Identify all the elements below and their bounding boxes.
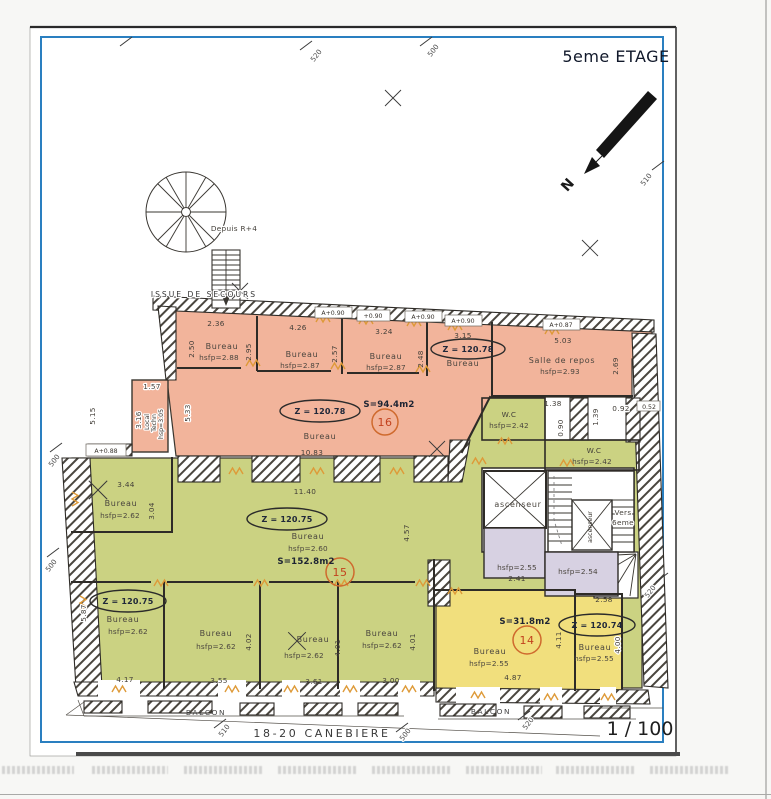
- dimension-label: 3.16: [134, 411, 143, 429]
- dimension-label: 2.41: [508, 574, 525, 583]
- room-height-label: hsp=3.05: [158, 409, 165, 439]
- room-height-label: hsfp=2.55: [497, 563, 537, 572]
- room-label: Bureau: [370, 352, 403, 361]
- footer-watermark-fragment: [556, 766, 634, 774]
- dimension-label: 1.57: [143, 382, 161, 391]
- footer-watermark-fragment: [184, 766, 264, 774]
- dimension-label: 4.01: [333, 639, 342, 656]
- dimension-label: 5.87: [79, 604, 88, 622]
- footer-watermark-fragment: [2, 766, 74, 774]
- room-label: Bureau: [579, 643, 612, 652]
- room-height-label: hsfp=2.93: [540, 367, 580, 376]
- room-number: 16: [378, 416, 393, 429]
- room-label: W.C: [587, 446, 602, 455]
- zone-z-label: Z = 120.75: [262, 515, 313, 524]
- dimension-label: 2.36: [207, 319, 225, 328]
- dimension-label: 5.03: [554, 336, 572, 345]
- zone-z-label: Z = 120.75: [103, 597, 154, 606]
- dimension-label: 0.90: [556, 419, 565, 437]
- room-height-label: hsfp=2.62: [196, 642, 236, 651]
- dimension-label: 3.24: [375, 327, 393, 336]
- room-number: 15: [333, 566, 348, 579]
- footer-watermark-fragment: [466, 766, 542, 774]
- dimension-label: 2.50: [187, 340, 196, 358]
- room-label: Salle de repos: [529, 356, 595, 365]
- zone-area-label: S=94.4m2: [363, 400, 414, 410]
- room-label: Techn: [151, 414, 158, 433]
- room-height-label: hsfp=2.55: [574, 654, 614, 663]
- balcony-label-right: BALCON: [471, 707, 511, 716]
- footer-watermark-fragment: [372, 766, 452, 774]
- room-height-label: hsfp=2.42: [572, 457, 612, 466]
- dimension-label: 5.33: [183, 404, 192, 422]
- dimension-label: 0.92: [612, 404, 629, 413]
- page-edge-line-right: [765, 0, 767, 799]
- stair-from-label: Depuis R+4: [211, 224, 257, 233]
- elevator-label: ascenseur: [587, 511, 594, 543]
- paper-bottom-shadow: [76, 752, 680, 756]
- dimension-label: 2.57: [330, 345, 339, 363]
- page-edge-line-bottom: [0, 794, 771, 795]
- room-height-label: hsfp=2.54: [558, 567, 598, 576]
- dimension-label: 1.39: [591, 408, 600, 426]
- window-marker: A+0.90: [451, 318, 474, 325]
- elevator-label: ascenseur: [494, 500, 541, 509]
- stair-destination-label: Vers: [615, 508, 632, 517]
- dimension-label: 4.87: [504, 673, 522, 682]
- room-label: Bureau: [297, 635, 330, 644]
- room-height-label: hsfp=2.62: [362, 641, 402, 650]
- room-label: W.C: [502, 410, 517, 419]
- floor-plan: N: [0, 0, 771, 799]
- dimension-label: 0.52: [642, 404, 656, 411]
- dimension-label: 3.61: [305, 677, 322, 686]
- room-number: 14: [520, 634, 535, 647]
- room-height-label: hsfp=2.62: [108, 627, 148, 636]
- dimension-label: 2.95: [244, 343, 253, 360]
- room-label: Bureau: [304, 432, 337, 441]
- room-height-label: hsfp=2.60: [288, 544, 328, 553]
- exit-label: ISSUE DE SECOURS: [151, 290, 257, 299]
- room-height-label: hsfp=2.42: [489, 421, 529, 430]
- zone-area-label: S=31.8m2: [499, 617, 550, 627]
- dimension-label: 4.26: [289, 323, 307, 332]
- dimension-label: 3.00: [382, 676, 400, 685]
- dimension-label: 11.40: [294, 487, 316, 496]
- room-label: Bureau: [286, 350, 319, 359]
- zone-z-label: Z = 120.78: [443, 345, 494, 354]
- dimension-label: 4.11: [554, 631, 563, 648]
- room-height-label: hsfp=2.87: [280, 361, 320, 370]
- room-label: Bureau: [447, 359, 480, 368]
- dimension-label: 4.17: [116, 675, 134, 684]
- dimension-label: 10.83: [301, 448, 323, 457]
- footer-watermark-fragment: [92, 766, 168, 774]
- dimension-label: 2.48: [416, 350, 425, 368]
- dimension-label: 4.00: [613, 636, 622, 654]
- footer-watermark-fragment: [278, 766, 356, 774]
- room-label: Bureau: [206, 342, 239, 351]
- room-height-label: hsfp=2.62: [100, 511, 140, 520]
- room-height-label: hsfp=2.55: [469, 659, 509, 668]
- window-marker: A+0.87: [549, 322, 572, 329]
- street-label: 18-20 CANEBIERE: [253, 727, 390, 740]
- scanned-floorplan-page: N: [0, 0, 771, 799]
- room-label: Bureau: [200, 629, 233, 638]
- window-marker: A+0.90: [411, 314, 434, 321]
- stair-destination-label: 6eme: [612, 518, 634, 527]
- room-label: Local: [144, 414, 151, 430]
- dimension-label: 3.15: [454, 331, 471, 340]
- window-marker: A+0.88: [94, 448, 117, 455]
- dimension-label: 4.02: [244, 633, 253, 650]
- zone-area-label: S=152.8m2: [277, 557, 334, 567]
- room-label: Bureau: [107, 615, 140, 624]
- dimension-label: 5.15: [88, 407, 97, 424]
- room-height-label: hsfp=2.88: [199, 353, 239, 362]
- window-marker: A+0.90: [321, 310, 344, 317]
- window-marker: +0.90: [364, 313, 383, 320]
- room-label: Bureau: [366, 629, 399, 638]
- dimension-label: 3.55: [210, 676, 227, 685]
- footer-watermark-fragment: [650, 766, 730, 774]
- floor-title: 5eme ETAGE: [562, 47, 669, 66]
- room-label: Bureau: [105, 499, 138, 508]
- balcony-label-left: BALCON: [186, 708, 226, 717]
- dimension-label: 4.57: [402, 524, 411, 542]
- stair-core: [482, 468, 638, 598]
- dimension-label: 2.58: [595, 595, 613, 604]
- room-height-label: hsfp=2.87: [366, 363, 406, 372]
- dimension-label: 1.38: [544, 399, 562, 408]
- dimension-label: 3.04: [147, 502, 156, 520]
- dimension-label: 4.01: [408, 633, 417, 650]
- zone-z-label: Z = 120.78: [295, 407, 346, 416]
- room-label: Bureau: [474, 647, 507, 656]
- scale-label: 1 / 100: [607, 718, 674, 740]
- zone-z-label: Z = 120.74: [572, 621, 623, 630]
- dimension-label: 3.44: [117, 480, 135, 489]
- room-label: Bureau: [292, 532, 325, 541]
- dimension-label: 2.69: [611, 357, 620, 375]
- room-height-label: hsfp=2.62: [284, 651, 324, 660]
